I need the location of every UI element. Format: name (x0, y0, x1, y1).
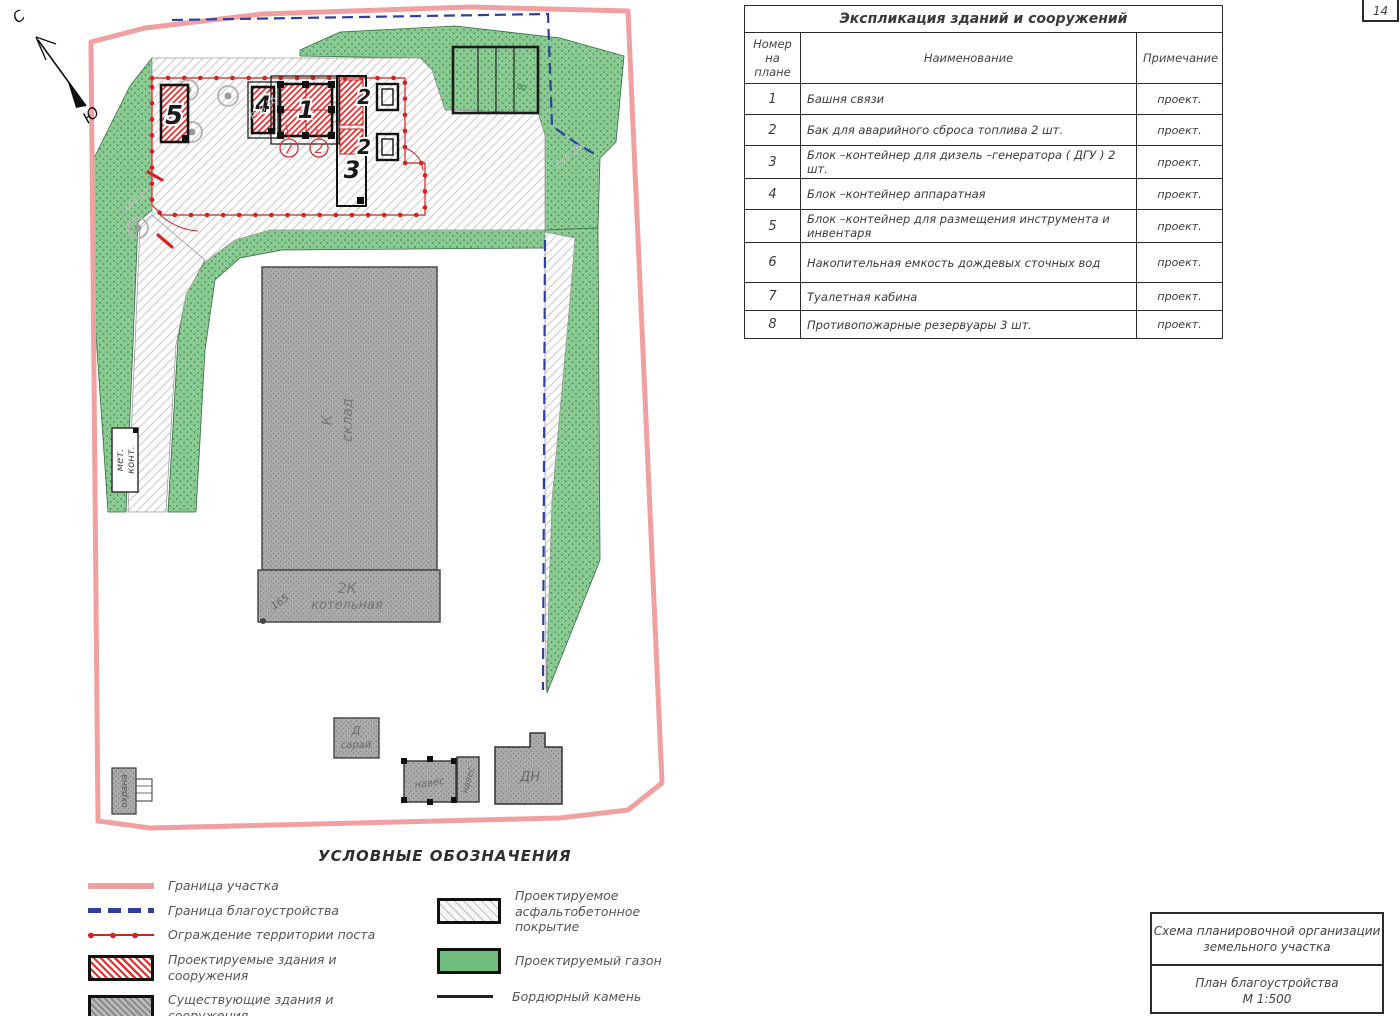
svg-text:7: 7 (285, 142, 294, 157)
canopy-building-2: навес (457, 757, 479, 802)
table-row: 8 Противопожарные резервуары 3 шт. проек… (745, 311, 1223, 339)
sheet-number: 14 (1362, 0, 1399, 22)
building-1-tower: 1 (271, 76, 339, 144)
svg-text:Д: Д (351, 724, 361, 737)
svg-text:2К: 2К (338, 581, 358, 597)
legend-item-curb: Бордюрный камень (437, 987, 695, 1007)
col-header-num: Номер на плане (745, 33, 801, 84)
legend-left-column: Граница участка Граница благоустройства … (88, 878, 398, 1016)
svg-text:мет.: мет. (115, 449, 126, 472)
legend-item-post-fence: Ограждение территории поста (88, 927, 398, 943)
boiler-building: 2К котельная 165 (258, 570, 440, 624)
title-block-sheet-name: План благоустройства М 1:500 (1152, 966, 1382, 1016)
svg-text:сарай: сарай (341, 740, 372, 751)
site-boundary-swatch (88, 883, 154, 889)
asphalt-swatch (437, 898, 501, 924)
col-header-note: Примечание (1137, 33, 1223, 84)
dn-building: ДН (495, 733, 562, 804)
curb-swatch (437, 995, 493, 999)
legend-right-column: Проектируемое асфальтобетонное покрытие … (437, 888, 695, 1006)
table-row: 2 Бак для аварийного сброса топлива 2 шт… (745, 115, 1223, 146)
svg-text:К: К (318, 413, 336, 425)
title-block: Схема планировочной организации земельно… (1150, 912, 1384, 1014)
svg-text:охрана: охрана (120, 774, 130, 807)
legend-item-existing-buildings: Существующие здания и сооружения (88, 992, 398, 1016)
svg-text:2: 2 (315, 142, 323, 157)
col-header-name: Наименование (801, 33, 1137, 84)
table-row: 3 Блок –контейнер для дизель –генератора… (745, 146, 1223, 179)
svg-text:ДН: ДН (519, 770, 540, 785)
legend-item-projected-buildings: Проектируемые здания и сооружения (88, 952, 398, 983)
drawing-sheet: 8 5 4 (0, 0, 1400, 1016)
building-1-label: 1 (298, 96, 315, 124)
fuel-tank-a-label: 2 (357, 85, 371, 109)
legend-title: УСЛОВНЫЕ ОБОЗНАЧЕНИЯ (318, 847, 572, 865)
post-fence-swatch (88, 931, 154, 940)
building-3-label: 3 (344, 156, 361, 184)
explication-table: Экспликация зданий и сооружений Номер на… (744, 5, 1223, 339)
compass-north-label: С (9, 6, 29, 27)
guard-building: охрана (112, 768, 152, 814)
table-title: Экспликация зданий и сооружений (745, 6, 1223, 33)
table-row: 6 Накопительная емкость дождевых сточных… (745, 243, 1223, 283)
survey-point (260, 618, 266, 624)
metal-container: мет. конт. (112, 428, 138, 492)
existing-buildings-swatch (88, 995, 154, 1016)
building-5-label: 5 (165, 101, 183, 131)
shed-building: Д сарай (334, 718, 379, 758)
svg-text:котельная: котельная (311, 598, 383, 613)
table-row: 1 Башня связи проект. (745, 84, 1223, 115)
improvement-boundary-swatch (88, 908, 154, 913)
projected-buildings-swatch (88, 955, 154, 981)
fuel-tank-b-label: 2 (357, 135, 371, 159)
legend-item-asphalt: Проектируемое асфальтобетонное покрытие (437, 888, 695, 935)
building-5: 5 (161, 85, 189, 142)
svg-text:склад: склад (340, 398, 356, 441)
svg-text:конт.: конт. (126, 446, 137, 474)
title-block-project-name: Схема планировочной организации земельно… (1152, 914, 1382, 966)
site-plan: 8 5 4 (0, 0, 700, 845)
legend-item-improvement-boundary: Граница благоустройства (88, 903, 398, 919)
table-row: 4 Блок –контейнер аппаратная проект. (745, 179, 1223, 210)
legend-item-site-boundary: Граница участка (88, 878, 398, 894)
table-row: 5 Блок –контейнер для размещения инструм… (745, 210, 1223, 243)
warehouse-building: К склад (262, 267, 437, 570)
table-row: 7 Туалетная кабина проект. (745, 283, 1223, 311)
canopy-building: навес (401, 756, 457, 805)
lawn-swatch (437, 948, 501, 974)
legend-item-lawn: Проектируемый газон (437, 948, 695, 974)
